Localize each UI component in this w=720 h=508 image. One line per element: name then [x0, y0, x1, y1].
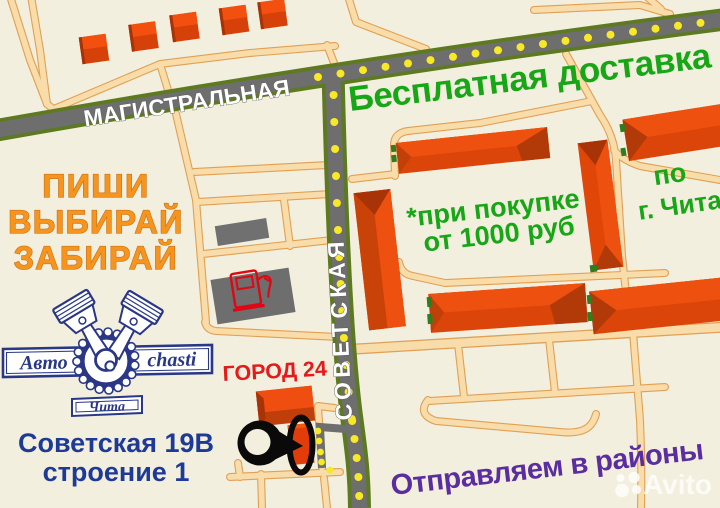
svg-text:Чита: Чита: [89, 400, 125, 416]
svg-text:ВЫБИРАЙ: ВЫБИРАЙ: [8, 204, 184, 240]
svg-text:ПИШИ: ПИШИ: [42, 168, 149, 204]
svg-text:Советская 19В: Советская 19В: [18, 428, 214, 458]
svg-text:Авто: Авто: [18, 352, 68, 375]
svg-text:ЗАБИРАЙ: ЗАБИРАЙ: [14, 240, 178, 276]
svg-text:по: по: [651, 157, 688, 191]
svg-text:chasti: chasti: [147, 349, 197, 372]
svg-text:строение 1: строение 1: [43, 457, 190, 487]
svg-text:Avito: Avito: [643, 469, 712, 500]
